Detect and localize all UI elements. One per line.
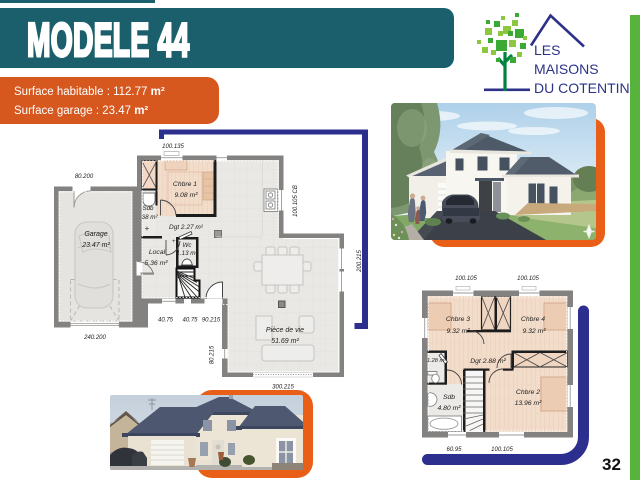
svg-text:Chbre 1: Chbre 1 [173,181,197,188]
svg-text:Sdb: Sdb [443,394,455,401]
svg-text:9.08 m²: 9.08 m² [174,192,198,199]
svg-text:100.105: 100.105 [491,447,513,453]
svg-text:1.13 m²: 1.13 m² [177,250,199,257]
svg-text:100.105 CB: 100.105 CB [293,185,299,217]
svg-text:90.215: 90.215 [202,318,221,324]
svg-text:Local: Local [149,249,166,256]
svg-text:+: + [172,239,176,245]
svg-text:Chbre 3: Chbre 3 [446,316,470,323]
svg-text:Wc: Wc [183,242,193,249]
svg-text:MAISONS: MAISONS [534,61,599,77]
svg-text:9.32 m²: 9.32 m² [522,328,546,335]
svg-text:80.200: 80.200 [75,174,94,180]
svg-text:40.75: 40.75 [182,318,198,324]
svg-text:100.135: 100.135 [162,144,184,150]
svg-text:Chbre 4: Chbre 4 [521,316,545,323]
svg-text:40.75: 40.75 [158,318,174,324]
svg-text:Pièce de vie: Pièce de vie [266,327,304,334]
svg-text:23.47 m²: 23.47 m² [81,242,110,249]
svg-text:Chbre 2: Chbre 2 [516,389,540,396]
svg-text:100.105: 100.105 [455,276,477,282]
svg-text:240.200: 240.200 [83,335,106,341]
svg-text:100.105: 100.105 [517,276,539,282]
svg-text:5.36 m²: 5.36 m² [144,260,168,267]
svg-text:DU COTENTIN: DU COTENTIN [534,80,630,96]
svg-text:+: + [145,224,150,233]
svg-text:Dgt 2.27 m²: Dgt 2.27 m² [169,224,204,231]
svg-text:LES: LES [534,42,560,58]
svg-text:60.95: 60.95 [446,447,462,453]
svg-text:80.215: 80.215 [210,345,216,364]
svg-text:13.96 m²: 13.96 m² [515,400,543,407]
svg-text:9.32 m²: 9.32 m² [446,328,470,335]
svg-text:1.28 m²: 1.28 m² [427,358,447,364]
svg-text:51.69 m²: 51.69 m² [271,338,299,345]
svg-text:4.80 m²: 4.80 m² [437,405,461,412]
svg-text:200.215: 200.215 [357,250,363,273]
svg-text:Dgt 2.88 m²: Dgt 2.88 m² [470,358,506,365]
svg-text:Sdb: Sdb [142,205,154,212]
svg-text:Garage: Garage [84,231,107,238]
